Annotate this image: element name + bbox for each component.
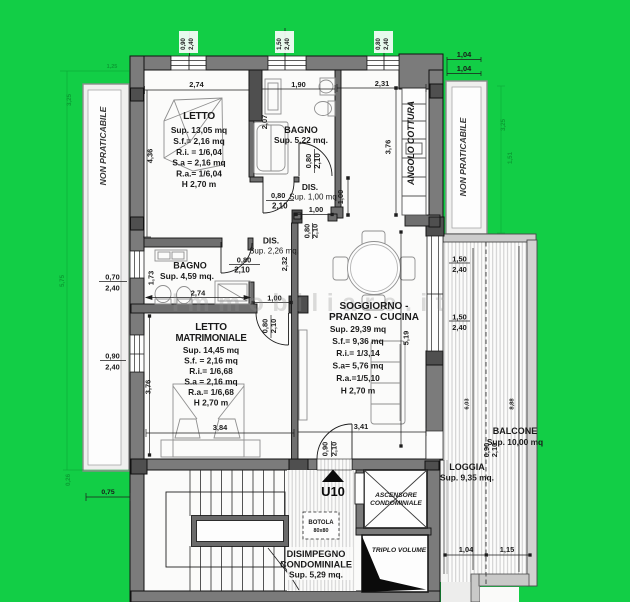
svg-text:1,15: 1,15 bbox=[500, 545, 514, 554]
svg-text:LETTO: LETTO bbox=[195, 322, 227, 333]
svg-text:3,25: 3,25 bbox=[500, 118, 507, 131]
svg-text:Sup. 1,00 mq: Sup. 1,00 mq bbox=[289, 193, 337, 202]
svg-text:CONDOMINIALE: CONDOMINIALE bbox=[280, 560, 352, 570]
svg-text:0,90: 0,90 bbox=[321, 442, 330, 456]
svg-text:PRANZO - CUCINA: PRANZO - CUCINA bbox=[329, 312, 419, 323]
svg-text:1,04: 1,04 bbox=[459, 545, 474, 554]
svg-text:Sup. 14,45 mq: Sup. 14,45 mq bbox=[183, 345, 239, 355]
svg-text:0,80: 0,80 bbox=[271, 191, 285, 200]
svg-text:1,73: 1,73 bbox=[147, 271, 156, 285]
svg-text:DIS.: DIS. bbox=[302, 182, 318, 192]
svg-text:R.i.= 1/3,14: R.i.= 1/3,14 bbox=[336, 348, 380, 358]
svg-text:R.i.= 1/6,68: R.i.= 1/6,68 bbox=[189, 366, 233, 376]
svg-text:3,76: 3,76 bbox=[144, 380, 153, 394]
svg-text:U10: U10 bbox=[321, 484, 345, 499]
svg-text:2,10: 2,10 bbox=[272, 202, 288, 211]
svg-text:Sup. 5,22 mq.: Sup. 5,22 mq. bbox=[274, 135, 328, 145]
svg-text:3,41: 3,41 bbox=[354, 422, 368, 431]
svg-text:2,40: 2,40 bbox=[189, 38, 195, 50]
svg-text:1,90: 1,90 bbox=[291, 80, 305, 89]
svg-text:NON PRATICABILE: NON PRATICABILE bbox=[458, 117, 468, 196]
svg-text:2,40: 2,40 bbox=[452, 265, 466, 274]
svg-text:1,00: 1,00 bbox=[309, 205, 323, 214]
svg-text:CONDOMINIALE: CONDOMINIALE bbox=[370, 500, 422, 507]
svg-text:2,40: 2,40 bbox=[105, 363, 119, 372]
svg-text:1,51: 1,51 bbox=[507, 151, 514, 164]
svg-text:H 2,70 m: H 2,70 m bbox=[182, 179, 216, 189]
svg-text:0,90: 0,90 bbox=[105, 352, 119, 361]
svg-text:2,10: 2,10 bbox=[311, 224, 320, 238]
svg-text:ASCENSORE: ASCENSORE bbox=[374, 492, 417, 499]
svg-text:S.a = 2,16 mq: S.a = 2,16 mq bbox=[172, 158, 225, 168]
svg-text:1,00: 1,00 bbox=[336, 190, 345, 204]
svg-text:LOGGIA: LOGGIA bbox=[449, 462, 485, 472]
svg-text:80x80: 80x80 bbox=[314, 528, 329, 534]
svg-text:S.f. = 2,16 mq: S.f. = 2,16 mq bbox=[184, 356, 238, 366]
svg-text:3,84: 3,84 bbox=[213, 423, 228, 432]
svg-text:0,80: 0,80 bbox=[376, 38, 382, 50]
svg-text:5,19: 5,19 bbox=[402, 331, 411, 345]
svg-text:Sup. 2,26 mq.: Sup. 2,26 mq. bbox=[249, 247, 299, 256]
svg-text:2,32: 2,32 bbox=[280, 257, 289, 271]
svg-text:2,10: 2,10 bbox=[330, 442, 339, 456]
svg-text:2,10: 2,10 bbox=[269, 319, 278, 333]
svg-text:4,36: 4,36 bbox=[146, 149, 155, 163]
svg-text:1,04: 1,04 bbox=[457, 50, 472, 59]
svg-text:3,25: 3,25 bbox=[66, 93, 73, 106]
svg-text:Sup. 9,35 mq.: Sup. 9,35 mq. bbox=[440, 473, 494, 483]
svg-text:2,74: 2,74 bbox=[189, 80, 204, 89]
svg-text:MATRIMONIALE: MATRIMONIALE bbox=[175, 333, 247, 344]
svg-text:ANGOLO COTTURA: ANGOLO COTTURA bbox=[406, 101, 416, 186]
svg-text:Sup. 29,39 mq: Sup. 29,39 mq bbox=[330, 324, 386, 334]
svg-text:LETTO: LETTO bbox=[183, 111, 215, 122]
svg-text:1,50: 1,50 bbox=[452, 255, 466, 264]
svg-text:2,10: 2,10 bbox=[234, 266, 250, 275]
svg-text:R.a.= 1/6,04: R.a.= 1/6,04 bbox=[176, 169, 222, 179]
svg-text:Sup. 10,00 mq: Sup. 10,00 mq bbox=[487, 437, 543, 447]
svg-text:2,40: 2,40 bbox=[285, 38, 291, 50]
svg-text:R.a.=1/5,10: R.a.=1/5,10 bbox=[336, 373, 380, 383]
svg-text:S.f.= 2,16 mq: S.f.= 2,16 mq bbox=[173, 136, 224, 146]
svg-text:Sup. 4,59 mq.: Sup. 4,59 mq. bbox=[160, 271, 214, 281]
svg-text:2,40: 2,40 bbox=[384, 38, 390, 50]
svg-text:6,03: 6,03 bbox=[465, 398, 471, 410]
svg-text:NON PRATICABILE: NON PRATICABILE bbox=[98, 106, 108, 185]
svg-text:0,70: 0,70 bbox=[105, 273, 119, 282]
svg-text:0,75: 0,75 bbox=[101, 489, 114, 496]
svg-text:0,26: 0,26 bbox=[65, 473, 72, 486]
svg-text:1,50: 1,50 bbox=[277, 38, 283, 50]
svg-text:1,25: 1,25 bbox=[107, 64, 118, 70]
svg-text:H 2,70 m: H 2,70 m bbox=[194, 398, 228, 408]
svg-text:R.i. = 1/6,04: R.i. = 1/6,04 bbox=[176, 147, 222, 157]
svg-text:BAGNO: BAGNO bbox=[173, 261, 207, 271]
svg-text:1,50: 1,50 bbox=[452, 313, 466, 322]
svg-text:0,90: 0,90 bbox=[181, 38, 187, 50]
svg-text:8,88: 8,88 bbox=[510, 398, 516, 410]
svg-text:BOTOLA: BOTOLA bbox=[308, 520, 334, 526]
svg-text:Sup. 5,29 mq.: Sup. 5,29 mq. bbox=[289, 570, 343, 580]
svg-text:DISIMPEGNO: DISIMPEGNO bbox=[287, 549, 346, 559]
svg-text:2,40: 2,40 bbox=[105, 284, 119, 293]
svg-text:H 2,70 m: H 2,70 m bbox=[341, 386, 375, 396]
svg-text:0,80: 0,80 bbox=[237, 256, 251, 265]
svg-text:TRIPLO VOLUME: TRIPLO VOLUME bbox=[372, 547, 427, 554]
svg-text:2,10: 2,10 bbox=[313, 153, 322, 169]
svg-text:DIS.: DIS. bbox=[263, 236, 279, 246]
svg-text:2,07: 2,07 bbox=[260, 115, 269, 129]
svg-text:S.a = 2,16 mq: S.a = 2,16 mq bbox=[184, 377, 237, 387]
svg-text:5,75: 5,75 bbox=[59, 274, 66, 287]
svg-text:BALCONE: BALCONE bbox=[493, 426, 538, 436]
svg-text:2,40: 2,40 bbox=[452, 323, 466, 332]
svg-text:2,31: 2,31 bbox=[375, 79, 389, 88]
svg-text:3,76: 3,76 bbox=[384, 140, 393, 154]
svg-text:Sup. 13,05 mq: Sup. 13,05 mq bbox=[171, 125, 227, 135]
svg-text:S.f.= 9,36 mq: S.f.= 9,36 mq bbox=[332, 336, 383, 346]
svg-text:R.a.= 1/6,68: R.a.= 1/6,68 bbox=[188, 387, 234, 397]
svg-text:1,04: 1,04 bbox=[457, 64, 472, 73]
svg-text:BAGNO: BAGNO bbox=[284, 125, 318, 135]
svg-text:0,80: 0,80 bbox=[304, 154, 313, 168]
svg-text:SOGGIORNO -: SOGGIORNO - bbox=[340, 301, 409, 312]
svg-text:S.a= 5,76 mq: S.a= 5,76 mq bbox=[333, 361, 384, 371]
